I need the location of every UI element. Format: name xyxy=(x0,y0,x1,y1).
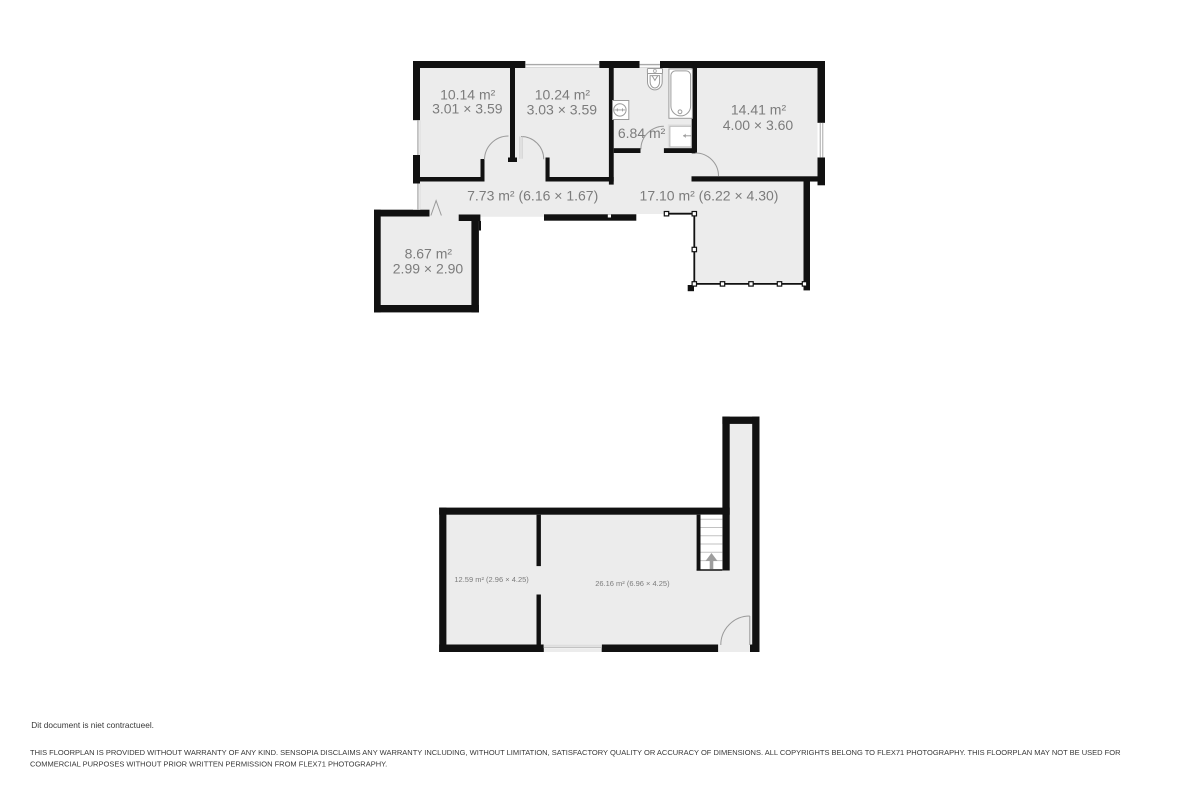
svg-text:3.03 × 3.59: 3.03 × 3.59 xyxy=(527,101,598,117)
svg-text:2.99 × 2.90: 2.99 × 2.90 xyxy=(393,261,464,277)
svg-text:12.59 m² (2.96 × 4.25): 12.59 m² (2.96 × 4.25) xyxy=(454,575,529,584)
svg-text:4.00 × 3.60: 4.00 × 3.60 xyxy=(723,117,794,133)
svg-text:7.73 m² (6.16 × 1.67): 7.73 m² (6.16 × 1.67) xyxy=(467,188,598,204)
svg-text:6.84 m²: 6.84 m² xyxy=(618,125,666,141)
svg-text:26.16 m² (6.96 × 4.25): 26.16 m² (6.96 × 4.25) xyxy=(595,579,670,588)
svg-text:COMMERCIAL PURPOSES WITHOUT PR: COMMERCIAL PURPOSES WITHOUT PRIOR WRITTE… xyxy=(30,759,387,768)
svg-text:8.67 m²: 8.67 m² xyxy=(405,246,453,262)
svg-text:14.41 m²: 14.41 m² xyxy=(731,101,787,117)
svg-text:Dit document is niet contractu: Dit document is niet contractueel. xyxy=(31,720,154,730)
svg-text:10.24 m²: 10.24 m² xyxy=(535,87,591,103)
svg-text:THIS FLOORPLAN IS PROVIDED WIT: THIS FLOORPLAN IS PROVIDED WITHOUT WARRA… xyxy=(30,748,1121,757)
svg-text:3.01 × 3.59: 3.01 × 3.59 xyxy=(432,101,503,117)
svg-text:17.10 m² (6.22 × 4.30): 17.10 m² (6.22 × 4.30) xyxy=(640,188,779,204)
